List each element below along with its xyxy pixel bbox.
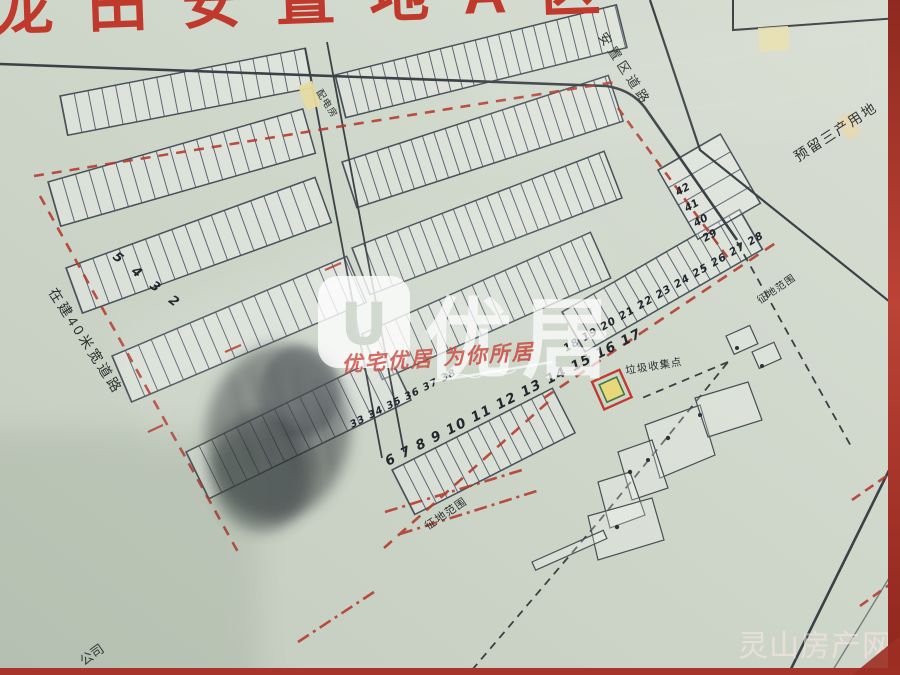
photo-of-site-plan: 6 7 8 9 10 11 12 13 14 15 16 17 33 34 35… xyxy=(0,0,900,675)
bottom-edge-strip xyxy=(0,668,900,675)
plan-svg: 6 7 8 9 10 11 12 13 14 15 16 17 33 34 35… xyxy=(0,0,900,675)
right-edge-strip xyxy=(888,0,900,675)
site-watermark: 灵山房产网 xyxy=(738,630,893,663)
